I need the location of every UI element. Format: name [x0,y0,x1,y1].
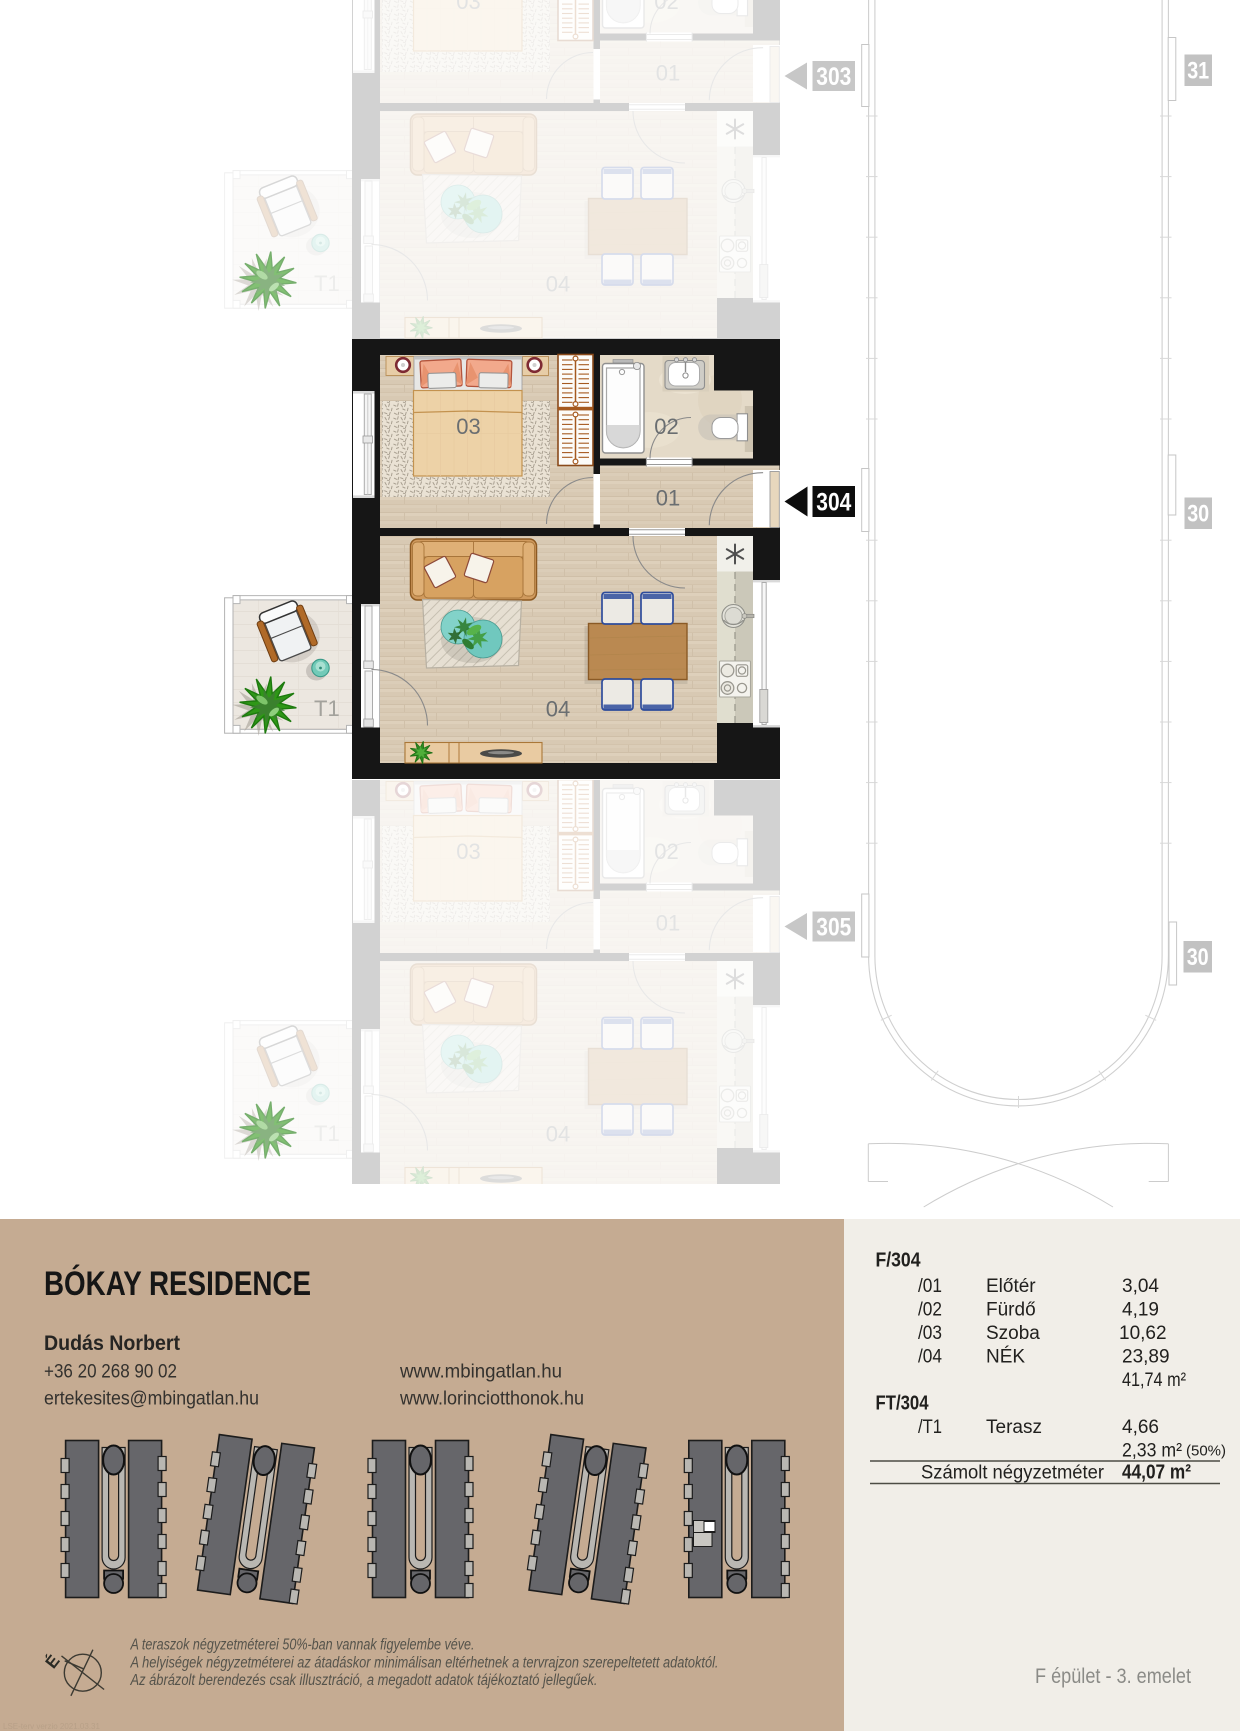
svg-text:4,66: 4,66 [1122,1417,1159,1438]
svg-text:A teraszok négyzetméterei 50%-: A teraszok négyzetméterei 50%-ban vannak… [130,1637,475,1654]
svg-text:10,62: 10,62 [1119,1323,1167,1344]
svg-text:/04: /04 [918,1347,942,1368]
svg-text:www.lorinciotthonok.hu: www.lorinciotthonok.hu [399,1388,584,1410]
svg-text:/02: /02 [918,1300,942,1321]
svg-text:304: 304 [816,489,851,517]
svg-text:Dudás Norbert: Dudás Norbert [44,1332,180,1355]
svg-text:NÉK: NÉK [986,1347,1025,1368]
svg-text:/T1: /T1 [918,1417,942,1438]
svg-text:Az ábrázolt berendezés csak il: Az ábrázolt berendezés csak illusztráció… [130,1672,598,1689]
svg-text:44,07 m²: 44,07 m² [1122,1462,1191,1484]
svg-text:Előtér: Előtér [986,1276,1036,1297]
svg-text:A helyiségek négyzetméterei az: A helyiségek négyzetméterei az átadáskor… [130,1654,719,1671]
svg-text:30: 30 [1187,501,1209,528]
svg-text:(50%): (50%) [1186,1443,1226,1460]
svg-text:Számolt négyzetméter: Számolt négyzetméter [921,1463,1105,1484]
svg-text:Fürdő: Fürdő [986,1300,1036,1321]
svg-text:30: 30 [1187,944,1209,971]
svg-text:F épület - 3. emelet: F épület - 3. emelet [1035,1665,1191,1688]
svg-text:BÓKAY RESIDENCE: BÓKAY RESIDENCE [44,1265,311,1303]
svg-text:41,74 m²: 41,74 m² [1122,1370,1186,1391]
svg-text:3,04: 3,04 [1122,1276,1159,1297]
svg-text:www.mbingatlan.hu: www.mbingatlan.hu [399,1361,562,1383]
svg-text:FT/304: FT/304 [876,1393,930,1415]
svg-text:LSE-terv verzio 2021.03.31: LSE-terv verzio 2021.03.31 [3,1722,100,1731]
svg-text:ertekesites@mbingatlan.hu: ertekesites@mbingatlan.hu [44,1388,259,1410]
svg-text:Terasz: Terasz [986,1417,1042,1438]
svg-text:/01: /01 [918,1276,942,1297]
svg-text:Szoba: Szoba [986,1323,1040,1344]
svg-text:31: 31 [1187,58,1209,85]
svg-text:23,89: 23,89 [1122,1347,1170,1368]
svg-text:F/304: F/304 [876,1250,922,1272]
svg-text:305: 305 [816,914,851,942]
svg-text:303: 303 [816,63,851,91]
svg-text:2,33 m²: 2,33 m² [1122,1441,1182,1462]
svg-text:+36 20 268 90 02: +36 20 268 90 02 [44,1361,177,1383]
svg-text:4,19: 4,19 [1122,1300,1159,1321]
svg-text:/03: /03 [918,1323,942,1344]
